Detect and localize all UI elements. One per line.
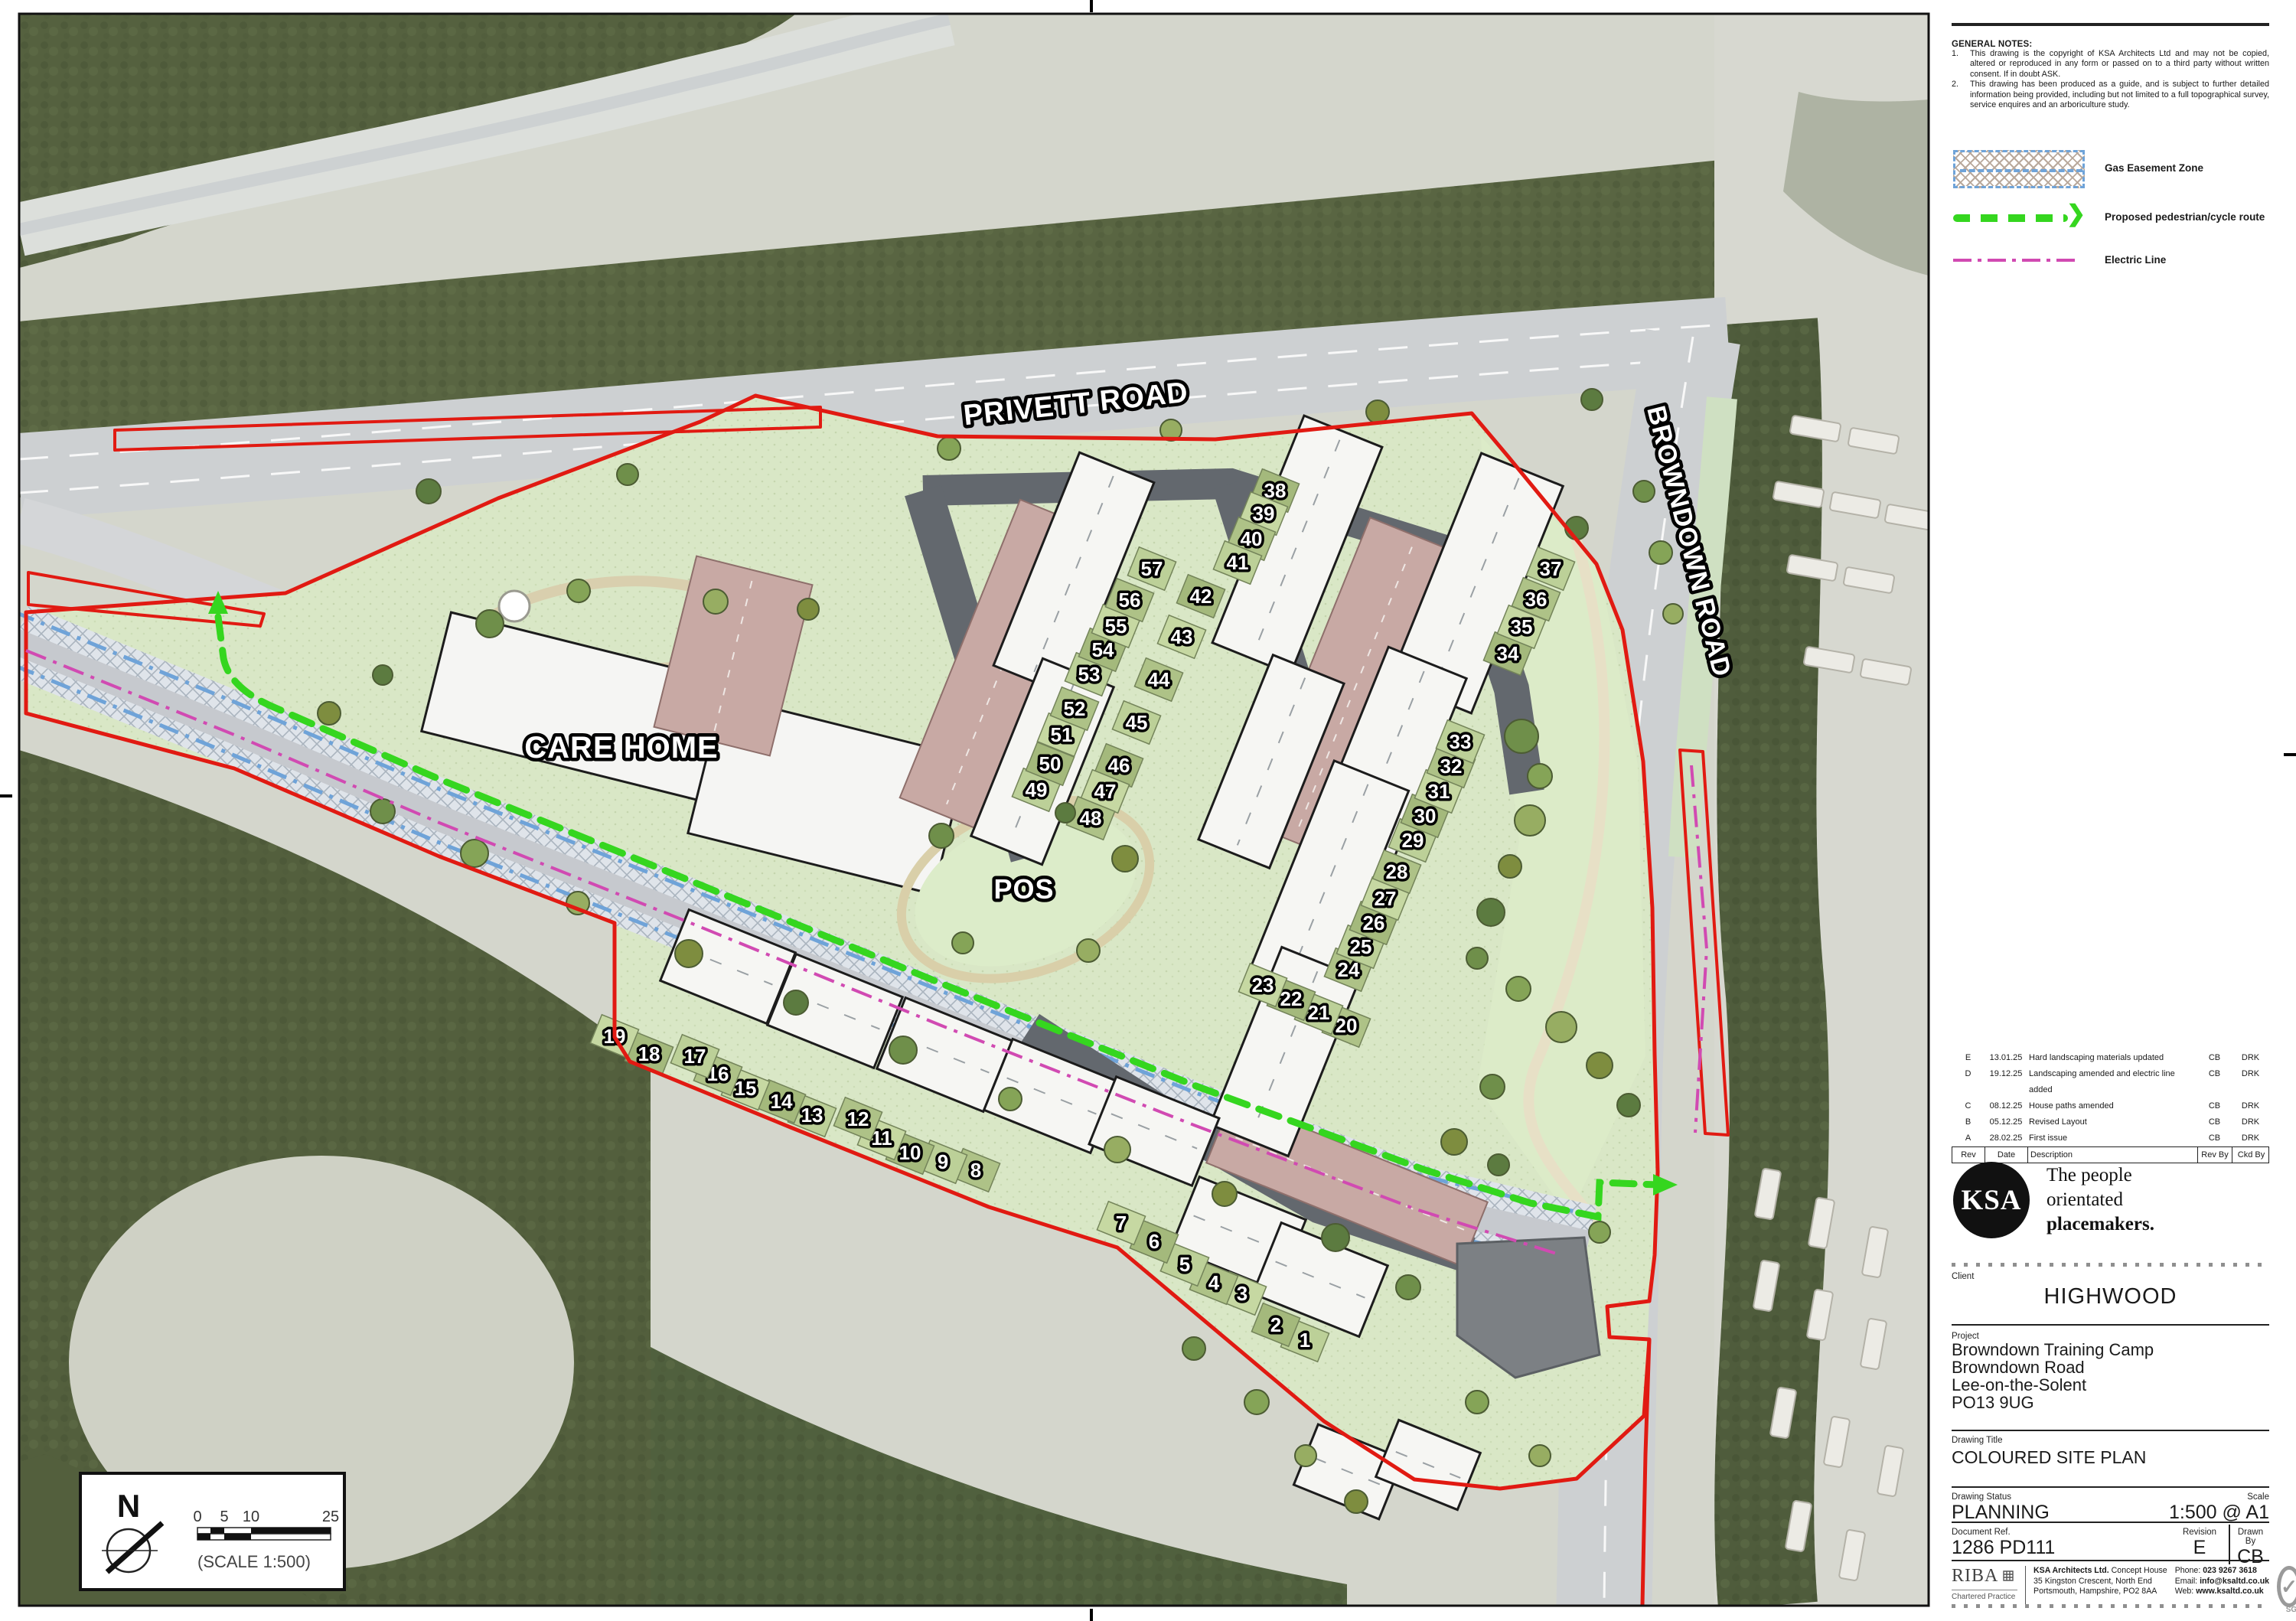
svg-text:0: 0 (193, 1508, 201, 1525)
general-notes: GENERAL NOTES: 1. This drawing is the co… (1952, 40, 2269, 110)
riba-logo: RIBA Chartered Practice (1952, 1566, 2017, 1607)
tree (1466, 1391, 1489, 1414)
legend-item-route: ❯ Proposed pedestrian/cycle route (1952, 208, 2269, 231)
divider (1952, 1486, 2269, 1488)
fold-mark (2284, 753, 2296, 756)
plot-number: 42 (1190, 585, 1212, 608)
tree (1322, 1224, 1349, 1251)
tree (1477, 899, 1505, 926)
tree (1480, 1075, 1505, 1099)
route-arrow-icon: ❯ (2066, 203, 2086, 226)
revision-row: E13.01.25Hard landscaping materials upda… (1952, 1050, 2269, 1066)
tree (461, 840, 488, 867)
tree (1528, 764, 1552, 788)
fold-mark (1090, 1609, 1093, 1621)
plot-number: 41 (1227, 551, 1249, 574)
tree (1104, 1137, 1130, 1163)
gazebo (499, 591, 530, 621)
project-block: Project Browndown Training Camp Browndow… (1952, 1332, 2269, 1411)
tree (318, 702, 341, 725)
plot-number: 49 (1026, 778, 1048, 801)
plot-number: 57 (1141, 557, 1163, 580)
status-block: Drawing Status PLANNING Scale 1:500 @ A1 (1952, 1492, 2269, 1524)
note-item: 1. This drawing is the copyright of KSA … (1952, 49, 2269, 80)
firm-address: KSA Architects Ltd. Concept House 35 Kin… (2033, 1566, 2167, 1607)
plot-number: 51 (1051, 723, 1073, 746)
divider (2229, 1525, 2230, 1564)
tree (929, 824, 954, 848)
tree (1366, 400, 1389, 423)
revision-rows: E13.01.25Hard landscaping materials upda… (1952, 1050, 2269, 1146)
plot-number: 9 (938, 1150, 948, 1173)
tree (1466, 947, 1488, 969)
plot-number: 44 (1148, 668, 1170, 691)
plot-number: 3 (1237, 1282, 1247, 1305)
plot-number: 12 (847, 1107, 869, 1130)
tree (784, 990, 808, 1015)
north-label: N (117, 1488, 140, 1524)
tree (952, 932, 974, 954)
plot-number: 45 (1126, 711, 1148, 734)
plot-number: 2 (1270, 1313, 1281, 1336)
notes-title: GENERAL NOTES: (1952, 40, 2269, 49)
tree (999, 1088, 1022, 1111)
plot-number: 29 (1402, 829, 1424, 852)
drawing-status: PLANNING (1952, 1502, 2050, 1524)
tree (1529, 1445, 1551, 1466)
revision-row: C08.12.25House paths amendedCBDRK (1952, 1098, 2269, 1114)
revision-value: E (2181, 1537, 2218, 1559)
north-scale-box: N 0 5 10 25 (SCALE 1:500) (80, 1473, 344, 1590)
gas-easement-swatch (1953, 150, 2085, 188)
title-column: GENERAL NOTES: 1. This drawing is the co… (1952, 0, 2269, 1621)
tree (938, 437, 960, 460)
plot-number: 28 (1386, 860, 1408, 883)
revision-header: Rev Date Description Rev By Ckd By (1952, 1146, 2269, 1163)
tree (1345, 1490, 1368, 1513)
plot-number: 31 (1428, 780, 1450, 803)
plot-number: 37 (1540, 557, 1562, 580)
plot-number: 43 (1171, 625, 1193, 648)
divider (1952, 1560, 2269, 1561)
tree (1295, 1445, 1316, 1466)
tree (567, 579, 590, 602)
drawing-title-block: Drawing Title COLOURED SITE PLAN (1952, 1436, 2269, 1468)
plot-number: 54 (1092, 638, 1114, 661)
plot-number: 17 (684, 1045, 706, 1068)
plot-number: 22 (1280, 987, 1303, 1010)
drawing-scale: 1:500 @ A1 (2169, 1502, 2269, 1524)
divider (1952, 1522, 2269, 1523)
svg-text:25: 25 (322, 1508, 339, 1525)
dotted-divider (1952, 1263, 2269, 1267)
tree (1505, 719, 1538, 753)
tree (1077, 939, 1100, 962)
revision-row: A28.02.25First issueCBDRK (1952, 1130, 2269, 1146)
plot-number: 5 (1179, 1253, 1190, 1276)
plot-number: 47 (1094, 780, 1117, 803)
divider (2025, 1566, 2026, 1607)
plot-number: 23 (1252, 974, 1274, 996)
tree (1499, 855, 1521, 878)
plot-number: 1 (1300, 1329, 1310, 1352)
sgs-logo: ✓SGS (2277, 1566, 2296, 1607)
plot-number: 48 (1080, 807, 1102, 830)
care-home-label: CARE HOME (524, 731, 718, 765)
tree (1617, 1094, 1640, 1117)
tree (797, 598, 819, 620)
fold-mark (0, 794, 12, 797)
tree (1581, 389, 1603, 410)
tree (476, 610, 504, 638)
tree (703, 589, 728, 614)
tree (1515, 805, 1545, 836)
dotted-divider (1952, 1604, 2269, 1608)
firm-block: RIBA Chartered Practice KSA Architects L… (1952, 1566, 2269, 1607)
plot-number: 26 (1363, 912, 1385, 934)
plot-number: 30 (1414, 804, 1437, 827)
tree (1589, 1221, 1610, 1243)
tree (416, 479, 441, 504)
drawing-title: COLOURED SITE PLAN (1952, 1447, 2269, 1468)
drawn-by-value: CB (2232, 1546, 2269, 1568)
tree (1055, 803, 1075, 823)
firm-contact: Phone: 023 9267 3618 Email: info@ksaltd.… (2175, 1566, 2269, 1607)
tree (1633, 481, 1655, 502)
plot-number: 21 (1308, 1001, 1330, 1024)
plot-number: 35 (1511, 615, 1533, 638)
ksa-logo: KSA (1953, 1162, 2030, 1238)
plot-number: 10 (899, 1141, 921, 1164)
plot-number: 34 (1497, 642, 1519, 665)
tree (889, 1036, 917, 1064)
tree (1244, 1390, 1269, 1414)
divider (1952, 23, 2269, 26)
plot-number: 14 (771, 1090, 793, 1113)
document-ref-block: Document Ref. 1286 PD111 Revision E Draw… (1952, 1528, 2269, 1564)
plot-number: 25 (1350, 935, 1372, 958)
note-item: 2. This drawing has been produced as a g… (1952, 80, 2269, 110)
divider (1952, 1430, 2269, 1431)
tree (1212, 1182, 1237, 1206)
plot-number: 7 (1116, 1212, 1127, 1235)
plot-number: 13 (801, 1104, 823, 1127)
revision-row: D19.12.25Landscaping amended and electri… (1952, 1066, 2269, 1098)
plot-number: 53 (1078, 663, 1101, 686)
pos-label: POS (993, 873, 1054, 905)
tree (1649, 541, 1672, 564)
tree (1663, 604, 1683, 624)
legend-item-electric: Electric Line (1952, 251, 2269, 274)
plot-number: 39 (1253, 502, 1275, 525)
plot-number: 33 (1450, 730, 1472, 753)
plot-number: 56 (1119, 589, 1141, 612)
plot-number: 18 (638, 1042, 660, 1065)
document-ref: 1286 PD111 (1952, 1537, 2055, 1559)
plot-number: 8 (970, 1159, 981, 1182)
tree (617, 464, 638, 485)
electric-swatch (1953, 259, 2076, 262)
svg-text:10: 10 (243, 1508, 259, 1525)
tree (1488, 1154, 1509, 1176)
tree (1587, 1052, 1613, 1078)
plot-number: 55 (1105, 615, 1127, 638)
plot-number: 6 (1149, 1230, 1159, 1253)
client-block: Client HIGHWOOD (1952, 1272, 2269, 1310)
tree (1441, 1129, 1467, 1155)
drawing-sheet: 1234567891011121314151617181920212223242… (0, 0, 2296, 1621)
divider (1952, 1324, 2269, 1326)
tree (1182, 1337, 1205, 1360)
riba-crest-icon (2003, 1570, 2014, 1581)
plot-number: 4 (1208, 1271, 1220, 1294)
plot-number: 40 (1241, 527, 1263, 550)
plot-number: 46 (1108, 754, 1130, 777)
tagline: The people orientated placemakers. (2047, 1163, 2154, 1237)
plot-number: 36 (1525, 588, 1548, 611)
route-swatch (1953, 214, 2068, 222)
fold-mark (1090, 0, 1093, 12)
legend-item-gas: Gas Easement Zone (1952, 150, 2269, 193)
revision-table: E13.01.25Hard landscaping materials upda… (1952, 1050, 2269, 1163)
revision-row: B05.12.25Revised LayoutCBDRK (1952, 1114, 2269, 1130)
tree (1112, 846, 1138, 872)
tree (675, 940, 703, 967)
scale-caption: (SCALE 1:500) (197, 1552, 311, 1571)
branding: KSA The people orientated placemakers. (1952, 1162, 2269, 1246)
svg-text:5: 5 (220, 1508, 228, 1525)
client-name: HIGHWOOD (1952, 1284, 2269, 1310)
tree (1396, 1275, 1420, 1300)
tree (1546, 1012, 1577, 1042)
tree (1506, 977, 1531, 1001)
plot-number: 50 (1039, 752, 1062, 775)
tree (373, 665, 393, 685)
plot-number: 15 (735, 1077, 757, 1100)
plot-number: 52 (1064, 697, 1086, 720)
plot-number: 27 (1375, 887, 1397, 910)
